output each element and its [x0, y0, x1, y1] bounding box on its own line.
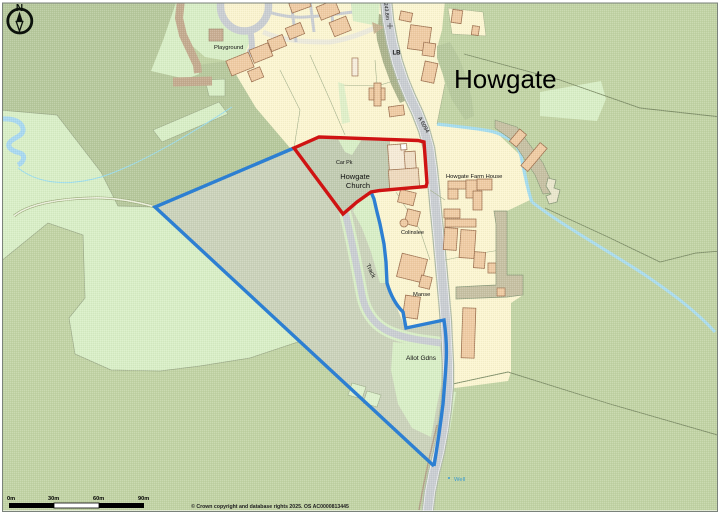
svg-text:Playground: Playground [214, 45, 243, 51]
svg-text:Manse: Manse [413, 292, 430, 298]
svg-text:Allot Gdns: Allot Gdns [406, 355, 437, 362]
svg-text:Colinslee: Colinslee [401, 230, 424, 236]
svg-text:Car Pk: Car Pk [336, 160, 353, 166]
svg-text:Well: Well [454, 477, 465, 483]
svg-text:LB: LB [393, 51, 402, 57]
svg-text:Howgate: Howgate [340, 172, 370, 181]
svg-text:60m: 60m [93, 496, 104, 502]
svg-text:Church: Church [346, 181, 370, 190]
svg-text:Howgate: Howgate [454, 64, 557, 94]
svg-text:Howgate Farm House: Howgate Farm House [446, 174, 502, 180]
svg-text:0m: 0m [7, 496, 15, 502]
svg-text:90m: 90m [138, 496, 149, 502]
svg-text:30m: 30m [48, 496, 59, 502]
svg-text:© Crown copyright and database: © Crown copyright and database rights 20… [191, 503, 349, 510]
